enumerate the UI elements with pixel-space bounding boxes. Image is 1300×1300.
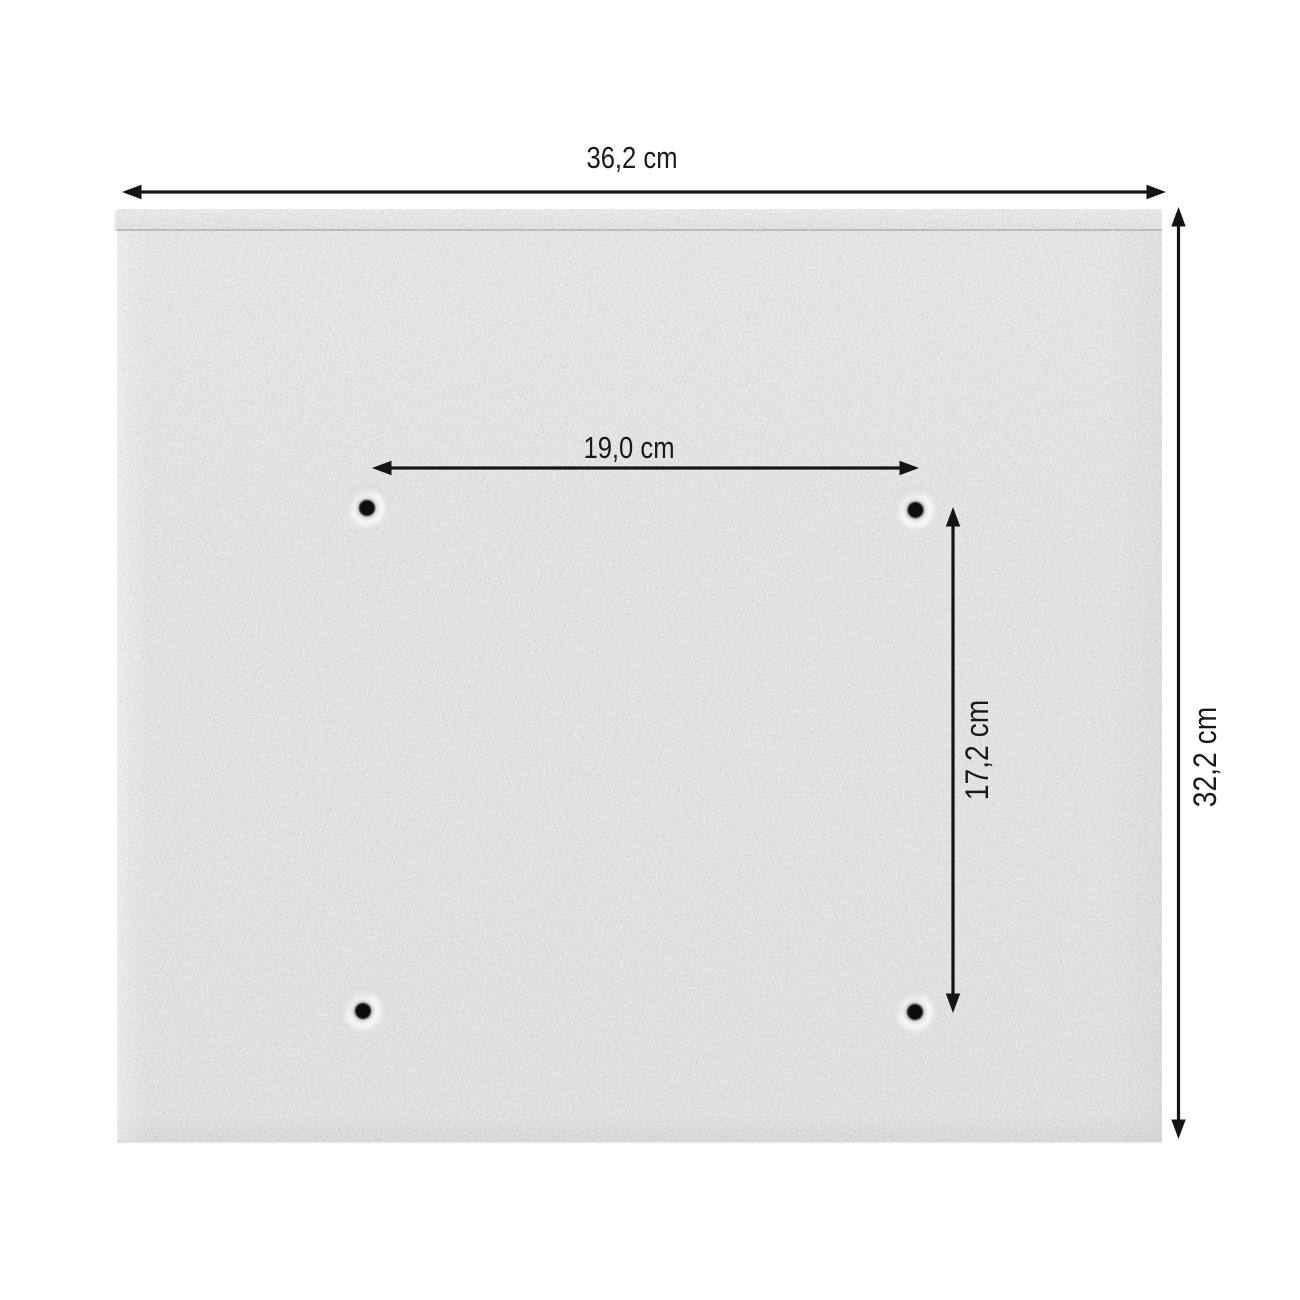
svg-text:17,2 cm: 17,2 cm — [959, 700, 995, 801]
svg-text:36,2 cm: 36,2 cm — [586, 141, 677, 175]
svg-text:19,0 cm: 19,0 cm — [583, 431, 674, 465]
svg-text:32,2 cm: 32,2 cm — [1187, 707, 1223, 808]
